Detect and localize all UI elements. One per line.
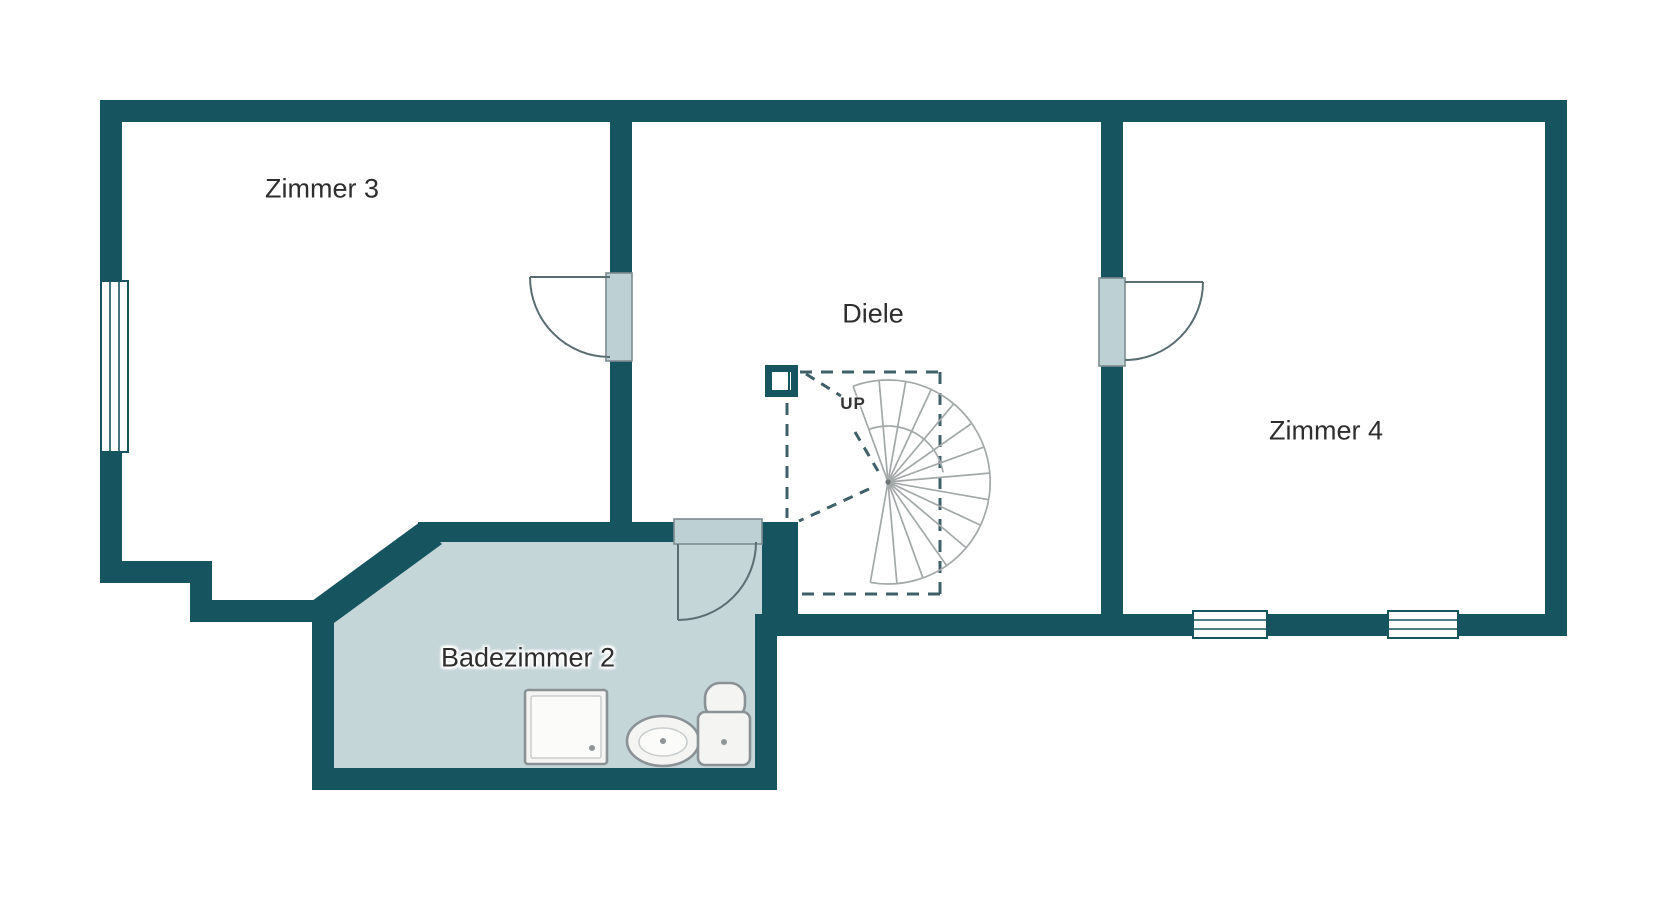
wall-zimmer3-diele-lower <box>610 361 632 522</box>
wall-bathroom-bottom <box>312 768 777 790</box>
door-zimmer3-swing-arc <box>530 277 610 357</box>
door-badezimmer-leaf <box>674 519 762 544</box>
room-label-diele: Diele <box>842 299 904 330</box>
sink-icon <box>627 716 699 766</box>
shower-icon <box>525 690 607 764</box>
floor-plan-drawing <box>0 0 1674 900</box>
door-zimmer3 <box>530 273 632 361</box>
room-label-zimmer4: Zimmer 4 <box>1269 416 1383 447</box>
spiral-staircase <box>853 380 990 584</box>
wall-right <box>1545 100 1567 636</box>
room-label-badezimmer2: Badezimmer 2 <box>441 643 615 674</box>
stair-center <box>885 479 890 484</box>
wall-zimmer3-diele-upper <box>610 122 632 275</box>
toilet-icon <box>698 683 750 765</box>
door-zimmer4 <box>1099 278 1203 366</box>
window-zimmer4-bottom-2 <box>1388 611 1458 638</box>
window-zimmer4-bottom-1 <box>1193 611 1267 638</box>
wall-top <box>100 100 1567 122</box>
door-zimmer3-leaf <box>606 273 632 361</box>
door-zimmer4-swing-arc <box>1125 282 1203 360</box>
room-label-zimmer3: Zimmer 3 <box>265 174 379 205</box>
window-zimmer3-left <box>101 281 128 452</box>
wall-bathroom-top <box>418 522 674 542</box>
wall-diele-zimmer4-lower <box>1101 366 1123 636</box>
stair-direction-label: UP <box>840 394 866 414</box>
door-zimmer4-leaf <box>1099 278 1125 366</box>
floor-plan-canvas: Zimmer 3 Diele Zimmer 4 Badezimmer 2 UP <box>0 0 1674 900</box>
wall-bathroom-left <box>312 600 334 790</box>
stair-post <box>769 369 795 394</box>
wall-bathroom-right <box>755 630 777 790</box>
wall-diele-zimmer4-upper <box>1101 122 1123 278</box>
